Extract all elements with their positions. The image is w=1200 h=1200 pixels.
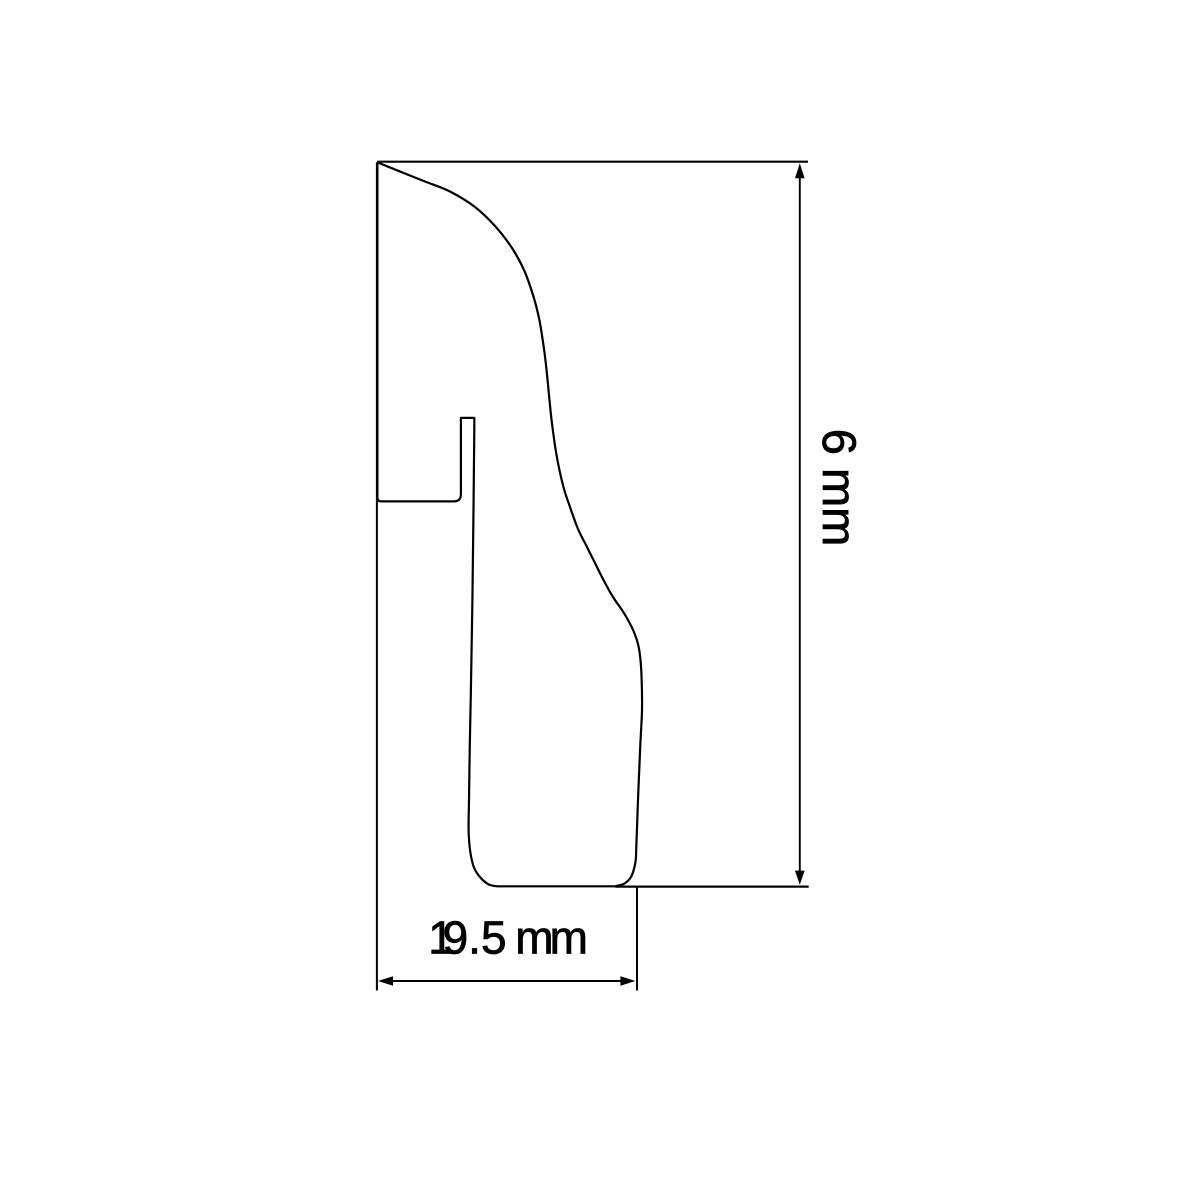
svg-text:6 mm: 6 mm [813, 429, 866, 547]
